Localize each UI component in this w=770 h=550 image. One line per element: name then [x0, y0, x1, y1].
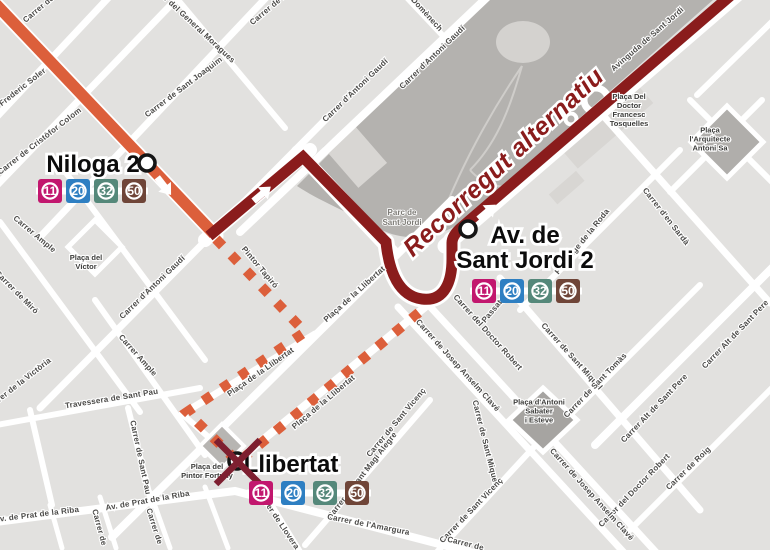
place-label: Plaça del: [191, 462, 224, 471]
place-label: Plaça del: [70, 253, 103, 262]
place-label: Sabater: [525, 407, 553, 416]
bus-line-number: 11: [44, 184, 57, 198]
place-label: Antoni Sa: [693, 144, 729, 153]
detour-map: Carrer deCarrer del General MoraguesFred…: [0, 0, 770, 550]
place-label: Plaça: [700, 126, 720, 135]
bus-line-number: 20: [286, 486, 300, 500]
bus-line-number: 50: [127, 184, 141, 198]
place-label: l'Arquitecte: [690, 135, 731, 144]
stop-name: Niloga 2: [46, 151, 139, 178]
place-label: i Esteve: [525, 416, 553, 425]
bus-line-number: 20: [71, 184, 85, 198]
bus-line-number: 11: [255, 486, 268, 500]
stop-name: Sant Jordi 2: [456, 247, 593, 274]
bus-line-number: 50: [350, 486, 364, 500]
bus-line-number: 32: [318, 486, 332, 500]
place-label: Plaça Del: [612, 92, 645, 101]
bus-line-number: 32: [99, 184, 113, 198]
park-label-line: Parc de: [388, 208, 417, 217]
bus-line-number: 11: [478, 284, 491, 298]
stop-name: Llibertat: [244, 451, 339, 478]
place-label: Plaça d'Antoni: [513, 398, 565, 407]
place-label: Francesc: [613, 110, 646, 119]
bus-line-number: 20: [505, 284, 519, 298]
stop-marker: [460, 221, 476, 237]
place-label: Tosquelles: [610, 119, 649, 128]
place-label: Víctor: [75, 262, 96, 271]
stop-name: Av. de: [490, 222, 559, 249]
park-pond: [496, 21, 550, 63]
bus-line-number: 50: [561, 284, 575, 298]
stop-niloga-2: Niloga 2: [46, 151, 155, 178]
stop-marker: [139, 155, 155, 171]
bus-line-number: 32: [533, 284, 547, 298]
place-label: Doctor: [617, 101, 641, 110]
